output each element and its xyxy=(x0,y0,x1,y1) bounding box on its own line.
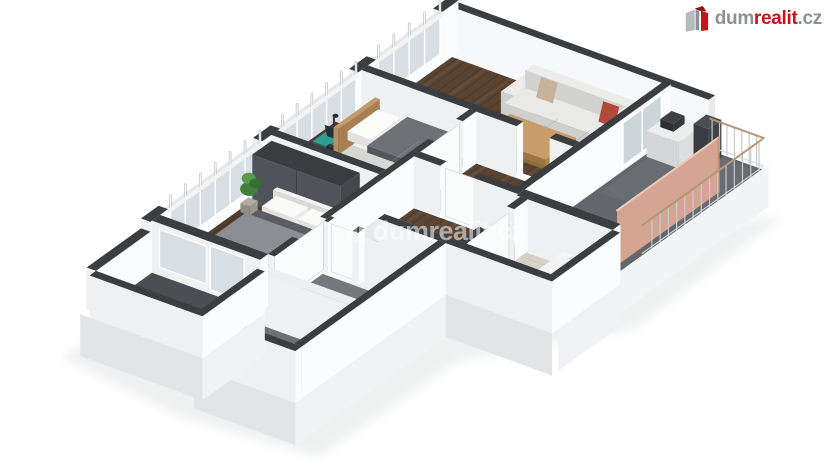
hall-door xyxy=(445,168,474,227)
floorplan-page: dumrealit.cz dumrealit.cz xyxy=(0,0,832,468)
balcony-parapet-sw-side xyxy=(202,312,208,359)
wall-living-south-a-side xyxy=(517,122,523,179)
floorplan-3d-render xyxy=(0,0,832,468)
wall-south-vestibule-side xyxy=(552,277,558,334)
wall-seg-front xyxy=(414,156,440,218)
plant-foliage xyxy=(249,179,261,189)
wall-seg-side xyxy=(463,112,477,174)
brand-box-icon xyxy=(684,5,709,32)
wall-seg-side xyxy=(514,199,528,261)
logo-part-dum: dum xyxy=(715,8,754,29)
brand-logo: dumrealit.cz xyxy=(684,5,822,32)
logo-part-cz: .cz xyxy=(798,8,822,29)
desk-lamp-head xyxy=(333,114,339,118)
wall-storage-south-side xyxy=(295,347,301,404)
logo-text: dumrealit.cz xyxy=(715,9,822,28)
scene-root xyxy=(62,0,785,457)
wall-seg-front xyxy=(353,231,359,285)
logo-part-realit: realit xyxy=(754,8,798,29)
wall-seg-side xyxy=(358,228,364,285)
corridor-end-door xyxy=(331,224,356,281)
wall-seg-front xyxy=(324,221,328,274)
